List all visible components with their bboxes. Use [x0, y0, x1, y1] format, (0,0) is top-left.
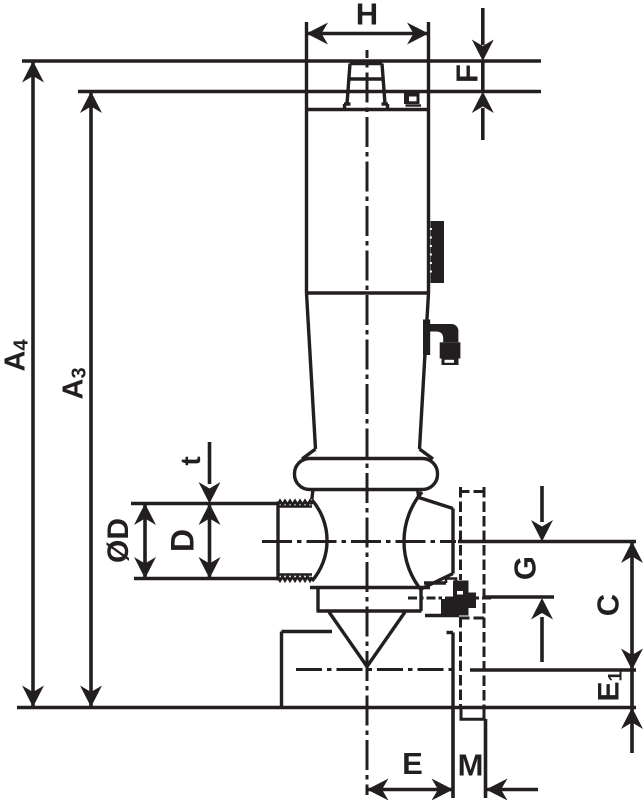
svg-text:M: M: [458, 748, 484, 783]
svg-text:ØD: ØD: [102, 518, 135, 563]
svg-text:D: D: [165, 529, 201, 552]
svg-text:H: H: [356, 0, 378, 32]
svg-text:E: E: [402, 746, 423, 781]
svg-text:F: F: [450, 64, 485, 83]
svg-text:C: C: [591, 594, 626, 616]
svg-text:G: G: [508, 556, 543, 580]
svg-text:t: t: [175, 456, 206, 465]
